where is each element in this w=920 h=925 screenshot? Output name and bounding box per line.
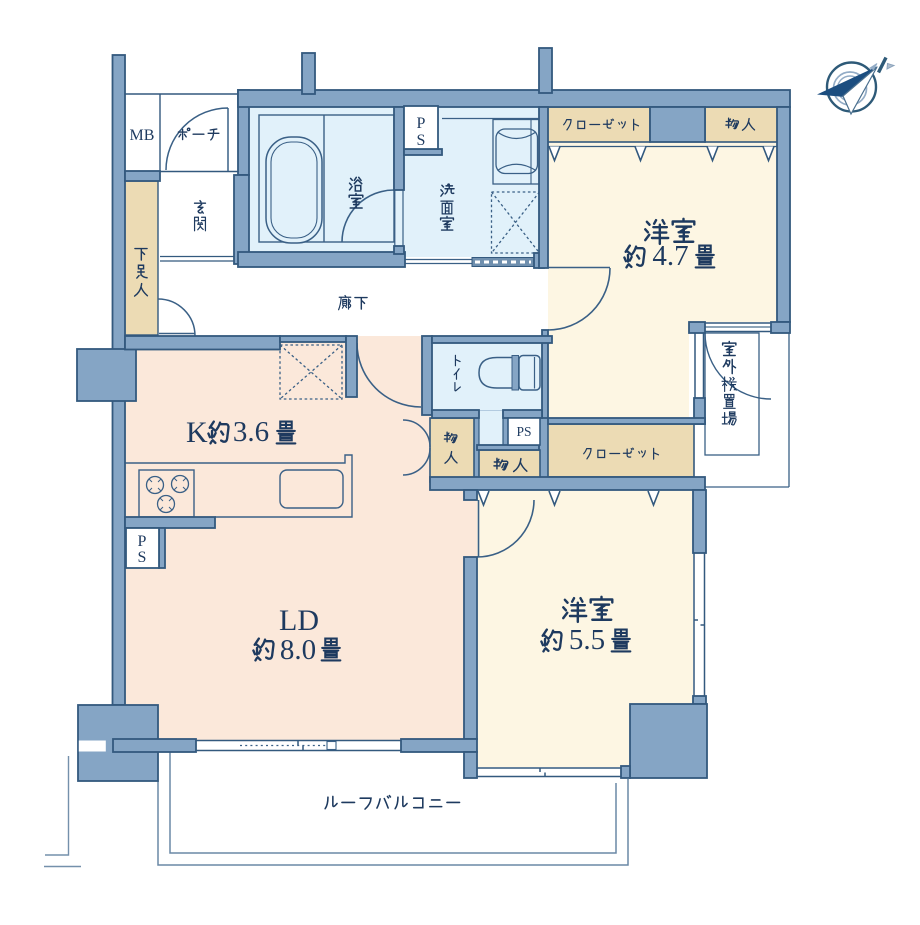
- svg-text:S: S: [417, 132, 426, 149]
- svg-text:LD: LD: [279, 604, 319, 637]
- svg-text:MB: MB: [130, 127, 155, 144]
- svg-text:PS: PS: [516, 424, 531, 439]
- svg-text:S: S: [138, 549, 147, 566]
- svg-text:K: K: [186, 416, 208, 449]
- svg-text:5.5: 5.5: [569, 624, 605, 656]
- svg-text:P: P: [138, 533, 147, 550]
- svg-text:4.7: 4.7: [652, 240, 688, 272]
- svg-text:3.6: 3.6: [233, 416, 269, 448]
- svg-text:P: P: [417, 115, 426, 132]
- svg-text:8.0: 8.0: [280, 634, 316, 666]
